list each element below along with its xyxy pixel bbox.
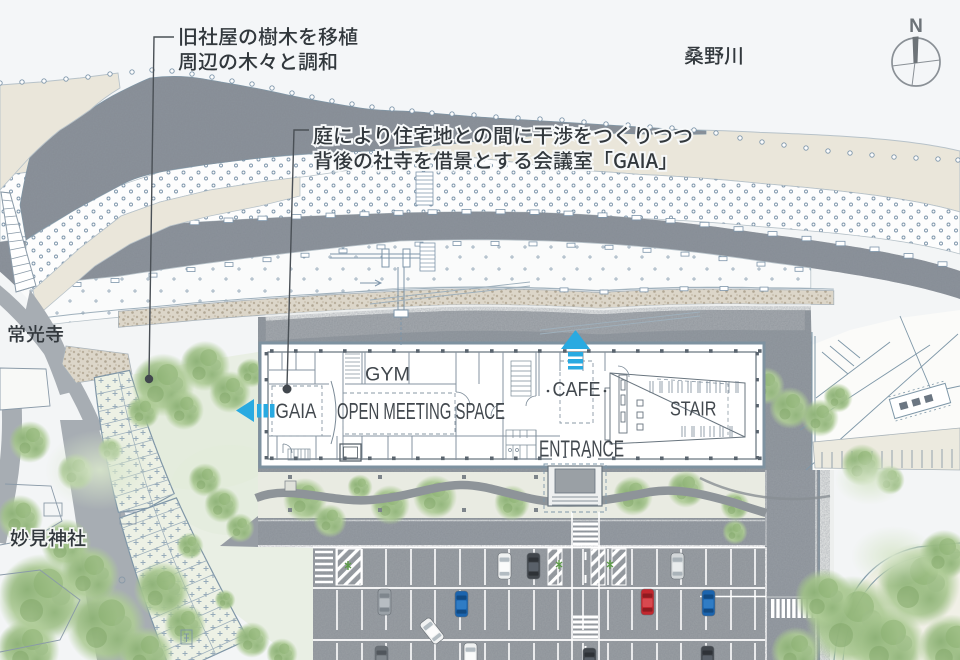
svg-text:GYM: GYM [365, 364, 410, 386]
svg-text:N: N [909, 16, 923, 37]
svg-text:CAFE: CAFE [553, 379, 601, 401]
svg-text:STAIR: STAIR [670, 398, 717, 421]
svg-text:OPEN MEETING SPACE: OPEN MEETING SPACE [337, 398, 505, 424]
svg-text:ENTRANCE: ENTRANCE [539, 436, 624, 462]
svg-text:GAIA: GAIA [276, 399, 318, 423]
